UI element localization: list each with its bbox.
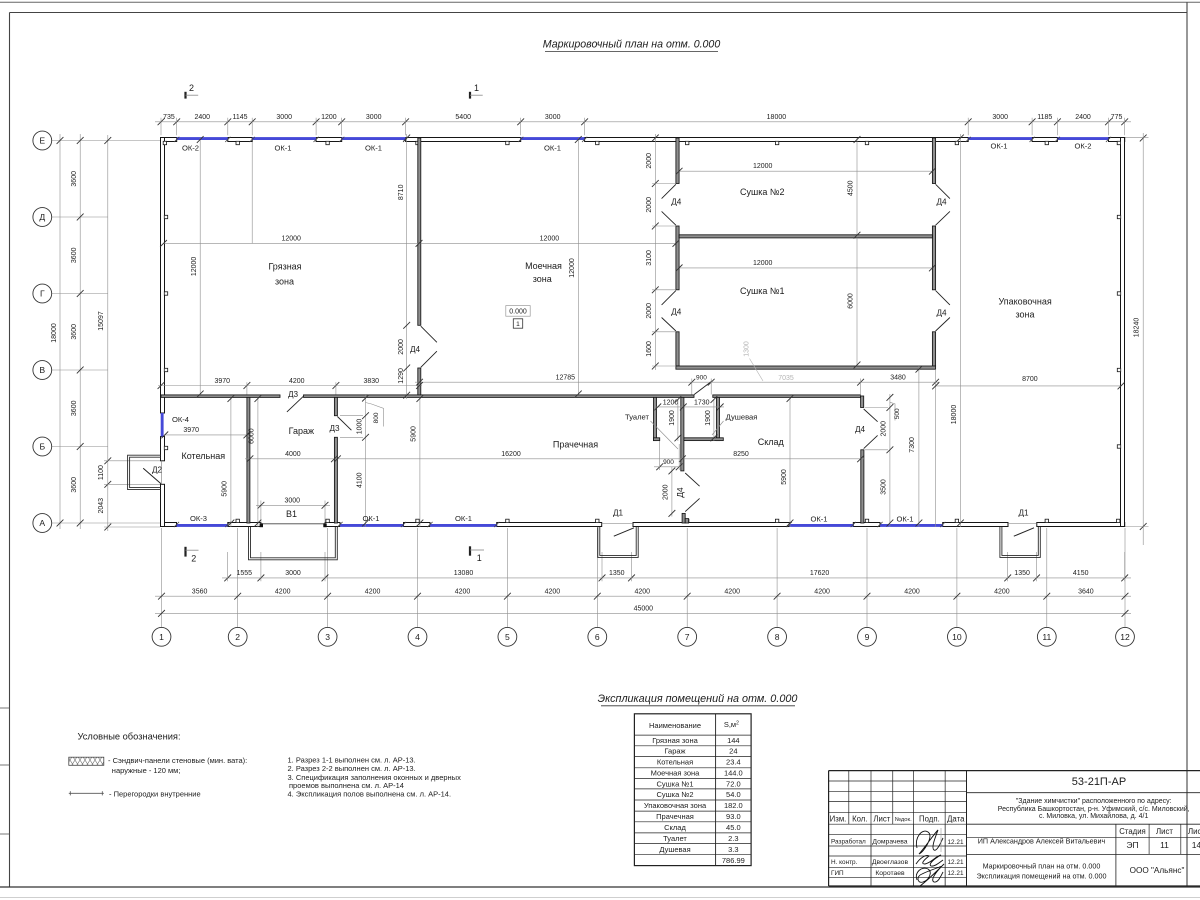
svg-text:Маркировочный план на отм. 0.0: Маркировочный план на отм. 0.000 <box>543 39 721 51</box>
svg-text:7300: 7300 <box>909 437 916 453</box>
svg-text:12000: 12000 <box>569 258 576 278</box>
svg-text:4500: 4500 <box>848 180 855 196</box>
svg-text:Склад: Склад <box>664 823 686 832</box>
svg-text:12000: 12000 <box>540 236 560 243</box>
svg-text:"Здание химчистки" расположенн: "Здание химчистки" расположенного по адр… <box>1016 798 1172 805</box>
svg-text:Прачечная: Прачечная <box>656 812 694 821</box>
svg-text:Гараж: Гараж <box>664 747 685 756</box>
svg-text:Д4: Д4 <box>671 198 682 207</box>
svg-text:3100: 3100 <box>646 250 653 266</box>
svg-text:4100: 4100 <box>357 472 364 488</box>
svg-text:2400: 2400 <box>195 114 211 121</box>
svg-text:1100: 1100 <box>98 465 105 480</box>
svg-text:2400: 2400 <box>1075 114 1091 121</box>
svg-text:Д: Д <box>39 212 45 222</box>
svg-text:0.000: 0.000 <box>509 308 527 315</box>
svg-text:500: 500 <box>894 408 901 419</box>
svg-text:11: 11 <box>1042 632 1051 642</box>
svg-text:18000: 18000 <box>51 323 58 343</box>
svg-text:1185: 1185 <box>1037 114 1052 121</box>
svg-text:2. Разрез 2-2 выполнен см. л.: 2. Разрез 2-2 выполнен см. л. АР-13. <box>288 764 416 773</box>
svg-text:зона: зона <box>275 277 294 287</box>
svg-text:Наименование: Наименование <box>649 721 701 730</box>
svg-text:Двоеглазов: Двоеглазов <box>872 859 909 866</box>
svg-text:4200: 4200 <box>994 588 1010 595</box>
svg-text:Д3: Д3 <box>329 424 340 433</box>
svg-text:6: 6 <box>595 632 600 642</box>
svg-text:1350: 1350 <box>609 570 625 577</box>
svg-text:2000: 2000 <box>398 339 405 355</box>
svg-text:ИП Александров Алексей Виталье: ИП Александров Алексей Витальевич <box>978 837 1106 846</box>
svg-text:Д2: Д2 <box>152 466 163 475</box>
svg-text:Моечная: Моечная <box>525 261 562 271</box>
svg-text:ГИП: ГИП <box>831 870 844 877</box>
svg-text:16200: 16200 <box>501 451 521 458</box>
svg-text:Кол.: Кол. <box>852 814 867 823</box>
svg-text:2043: 2043 <box>98 498 105 514</box>
svg-text:144: 144 <box>727 736 740 745</box>
svg-text:12.21: 12.21 <box>948 839 964 846</box>
svg-text:54.0: 54.0 <box>726 790 741 799</box>
svg-text:Душевая: Душевая <box>659 845 690 854</box>
svg-text:Туалет: Туалет <box>625 413 650 422</box>
svg-text:Экспликация помещений на отм.: Экспликация помещений на отм. 0.000 <box>976 871 1106 880</box>
svg-text:4200: 4200 <box>365 588 381 595</box>
svg-text:6000: 6000 <box>249 428 256 444</box>
svg-text:4200: 4200 <box>275 588 291 595</box>
svg-text:12000: 12000 <box>753 163 773 170</box>
svg-text:45.0: 45.0 <box>726 823 741 832</box>
svg-text:5900: 5900 <box>222 481 229 497</box>
svg-text:Туалет: Туалет <box>663 834 687 843</box>
svg-text:12785: 12785 <box>556 375 576 382</box>
svg-text:3600: 3600 <box>71 324 78 340</box>
svg-text:3480: 3480 <box>890 375 906 382</box>
svg-text:8710: 8710 <box>398 184 405 200</box>
svg-text:93.0: 93.0 <box>726 812 741 821</box>
svg-text:4200: 4200 <box>904 588 920 595</box>
svg-text:8250: 8250 <box>733 451 749 458</box>
svg-text:2: 2 <box>191 554 196 564</box>
svg-text:1: 1 <box>516 321 520 328</box>
svg-text:проемов выполнена см. л. АР-14: проемов выполнена см. л. АР-14 <box>289 781 404 790</box>
svg-text:900: 900 <box>663 459 674 466</box>
svg-text:182.0: 182.0 <box>724 801 743 810</box>
svg-text:3000: 3000 <box>545 114 561 121</box>
svg-text:1: 1 <box>477 553 482 563</box>
svg-text:Прачечная: Прачечная <box>553 439 598 449</box>
svg-text:Д4: Д4 <box>671 307 682 316</box>
svg-text:3600: 3600 <box>71 171 78 187</box>
svg-text:Сушка №1: Сушка №1 <box>656 779 693 788</box>
svg-text:Грязная: Грязная <box>268 262 301 272</box>
svg-text:3560: 3560 <box>192 588 208 595</box>
svg-text:72.0: 72.0 <box>726 779 741 788</box>
svg-text:4000: 4000 <box>285 451 301 458</box>
svg-text:1: 1 <box>159 632 164 642</box>
svg-text:3970: 3970 <box>183 427 199 434</box>
svg-text:3640: 3640 <box>1078 588 1094 595</box>
svg-text:12.21: 12.21 <box>948 870 964 877</box>
svg-text:8: 8 <box>775 632 780 642</box>
svg-text:1000: 1000 <box>357 419 364 435</box>
svg-text:45000: 45000 <box>634 606 654 613</box>
svg-text:4: 4 <box>415 632 420 642</box>
svg-text:3000: 3000 <box>366 114 382 121</box>
svg-text:ОК-1: ОК-1 <box>362 514 379 523</box>
svg-text:7: 7 <box>685 632 690 642</box>
svg-text:ОК-1: ОК-1 <box>810 514 827 523</box>
svg-text:6000: 6000 <box>848 293 855 309</box>
svg-text:5: 5 <box>505 632 510 642</box>
svg-text:12000: 12000 <box>281 236 301 243</box>
svg-text:зона: зона <box>533 274 552 284</box>
svg-text:3600: 3600 <box>71 247 78 263</box>
svg-text:Грязная зона: Грязная зона <box>652 736 698 745</box>
svg-text:с. Миловка, ул. Михайлова, д.: с. Миловка, ул. Михайлова, д. 4/1 <box>1039 812 1148 820</box>
svg-text:Д4: Д4 <box>410 345 421 354</box>
svg-text:1730: 1730 <box>694 399 710 406</box>
svg-text:Дата: Дата <box>947 814 965 823</box>
svg-text:23.4: 23.4 <box>726 758 741 767</box>
svg-text:Д4: Д4 <box>936 309 947 318</box>
svg-text:12.21: 12.21 <box>948 859 964 866</box>
svg-text:3830: 3830 <box>364 378 380 385</box>
svg-text:ОК-1: ОК-1 <box>990 141 1007 150</box>
svg-text:1350: 1350 <box>1014 570 1030 577</box>
svg-text:Республика Башкортостан, р-н.: Республика Башкортостан, р-н. Уфимский, … <box>998 805 1190 813</box>
svg-text:Стадия: Стадия <box>1119 827 1146 836</box>
svg-text:13080: 13080 <box>454 570 474 577</box>
svg-text:2000: 2000 <box>646 197 653 213</box>
svg-text:4200: 4200 <box>635 588 651 595</box>
svg-text:1290: 1290 <box>398 368 405 384</box>
svg-text:ОК-1: ОК-1 <box>455 514 472 523</box>
svg-text:12000: 12000 <box>753 260 773 267</box>
svg-text:Д1: Д1 <box>613 509 624 518</box>
svg-text:14: 14 <box>1192 840 1200 850</box>
svg-text:1555: 1555 <box>237 570 253 577</box>
svg-text:2000: 2000 <box>646 303 653 319</box>
svg-text:5400: 5400 <box>455 114 471 121</box>
svg-text:ООО "Альянс": ООО "Альянс" <box>1130 866 1185 875</box>
svg-text:Котельная: Котельная <box>657 758 693 767</box>
svg-text:Е: Е <box>39 136 45 146</box>
svg-text:775: 775 <box>1111 114 1123 121</box>
svg-text:18000: 18000 <box>951 405 958 425</box>
svg-text:Лист: Лист <box>873 814 890 823</box>
svg-text:Упаковочная: Упаковочная <box>998 297 1051 307</box>
svg-text:1900: 1900 <box>705 410 712 426</box>
svg-text:3: 3 <box>325 632 330 642</box>
svg-text:4. Экспликация полов выполнена: 4. Экспликация полов выполнена см. л. АР… <box>288 790 452 799</box>
svg-text:3000: 3000 <box>276 114 292 121</box>
svg-text:4200: 4200 <box>814 588 830 595</box>
svg-text:900: 900 <box>696 375 707 382</box>
svg-text:144.0: 144.0 <box>724 769 743 778</box>
svg-text:3600: 3600 <box>71 400 78 416</box>
svg-text:4150: 4150 <box>1073 570 1089 577</box>
svg-text:786.99: 786.99 <box>722 856 745 865</box>
svg-text:Б: Б <box>39 442 45 452</box>
svg-text:В: В <box>39 365 45 375</box>
svg-text:800: 800 <box>373 412 380 423</box>
svg-text:- Перегородки внутренние: - Перегородки внутренние <box>109 790 201 799</box>
svg-text:9: 9 <box>865 632 870 642</box>
svg-text:2000: 2000 <box>663 484 670 500</box>
svg-text:3500: 3500 <box>881 479 888 495</box>
svg-text:Д4: Д4 <box>936 198 947 207</box>
svg-text:3000: 3000 <box>992 114 1008 121</box>
svg-text:Д4: Д4 <box>855 425 866 434</box>
svg-text:Экспликация помещений на отм.: Экспликация помещений на отм. 0.000 <box>598 693 798 705</box>
svg-text:3970: 3970 <box>215 378 231 385</box>
svg-text:ОК-1: ОК-1 <box>544 143 561 152</box>
svg-text:735: 735 <box>163 114 175 121</box>
svg-text:Д4: Д4 <box>676 487 685 498</box>
svg-text:1300: 1300 <box>743 341 750 357</box>
svg-text:Условные обозначения:: Условные обозначения: <box>78 732 181 742</box>
svg-text:ОК-1: ОК-1 <box>896 514 913 523</box>
svg-text:наружные - 120 мм;: наружные - 120 мм; <box>112 766 181 775</box>
svg-text:4200: 4200 <box>455 588 471 595</box>
svg-text:3000: 3000 <box>285 570 301 577</box>
svg-text:Гараж: Гараж <box>289 426 314 436</box>
svg-text:2: 2 <box>189 83 194 93</box>
svg-text:24: 24 <box>729 747 737 756</box>
svg-text:ЭП: ЭП <box>1126 840 1138 850</box>
svg-text:Лист: Лист <box>1188 827 1200 836</box>
svg-text:Домрачева: Домрачева <box>872 838 907 845</box>
svg-text:Моечная зона: Моечная зона <box>651 769 700 778</box>
svg-text:4200: 4200 <box>545 588 561 595</box>
svg-text:1. Разрез 1-1 выполнен см. л.: 1. Разрез 1-1 выполнен см. л. АР-13. <box>288 755 416 764</box>
svg-text:5900: 5900 <box>411 426 418 442</box>
svg-text:Разработал: Разработал <box>831 837 866 845</box>
svg-text:2000: 2000 <box>881 421 888 437</box>
svg-text:Г: Г <box>40 289 45 299</box>
svg-text:18240: 18240 <box>1134 318 1141 338</box>
svg-text:11: 11 <box>1160 840 1169 850</box>
svg-text:10: 10 <box>952 632 962 642</box>
svg-text:Склад: Склад <box>758 437 785 447</box>
svg-text:2: 2 <box>235 632 240 642</box>
svg-text:18000: 18000 <box>767 114 787 121</box>
svg-text:Сушка №1: Сушка №1 <box>740 286 785 296</box>
svg-text:Н. контр.: Н. контр. <box>831 859 858 866</box>
svg-text:7035: 7035 <box>778 375 794 382</box>
svg-text:15097: 15097 <box>98 311 105 331</box>
svg-text:ОК-3: ОК-3 <box>190 514 207 523</box>
svg-text:Упаковочная зона: Упаковочная зона <box>644 801 707 810</box>
svg-text:Маркировочный план на отм. 0.0: Маркировочный план на отм. 0.000 <box>983 861 1101 870</box>
svg-text:2.3: 2.3 <box>728 834 738 843</box>
svg-text:1: 1 <box>474 83 479 93</box>
svg-text:5900: 5900 <box>781 469 788 485</box>
svg-text:ОК-1: ОК-1 <box>274 143 291 152</box>
svg-text:8700: 8700 <box>1022 376 1038 383</box>
svg-text:4200: 4200 <box>724 588 740 595</box>
svg-text:В1: В1 <box>286 509 297 519</box>
svg-text:Подп.: Подп. <box>919 814 940 823</box>
svg-text:ОК-2: ОК-2 <box>1074 141 1091 150</box>
svg-text:Д1: Д1 <box>1018 509 1029 518</box>
svg-text:1200: 1200 <box>663 399 679 406</box>
svg-text:17620: 17620 <box>810 570 830 577</box>
svg-text:№док.: №док. <box>895 817 912 823</box>
svg-text:3.3: 3.3 <box>728 845 738 854</box>
svg-text:- Сэндвич-панели стеновые (мин: - Сэндвич-панели стеновые (мин. вата): <box>108 756 247 765</box>
svg-text:Котельная: Котельная <box>182 451 226 461</box>
svg-text:3000: 3000 <box>285 498 301 505</box>
svg-text:зона: зона <box>1015 310 1034 320</box>
svg-text:53-21П-АР: 53-21П-АР <box>1072 776 1126 788</box>
svg-text:Коротаев: Коротаев <box>875 870 905 877</box>
svg-text:А: А <box>39 518 45 528</box>
svg-text:1200: 1200 <box>321 114 337 121</box>
svg-text:Лист: Лист <box>1156 827 1173 836</box>
svg-text:ОК-2: ОК-2 <box>182 143 199 152</box>
svg-text:Изм.: Изм. <box>830 814 847 823</box>
svg-text:1145: 1145 <box>232 114 247 121</box>
svg-text:Сушка №2: Сушка №2 <box>656 790 693 799</box>
svg-text:Д3: Д3 <box>288 390 299 399</box>
svg-text:12000: 12000 <box>191 257 198 277</box>
svg-text:2000: 2000 <box>646 153 653 169</box>
svg-text:12: 12 <box>1120 632 1130 642</box>
svg-text:Душевая: Душевая <box>726 413 758 422</box>
svg-text:Сушка №2: Сушка №2 <box>740 187 785 197</box>
svg-text:1900: 1900 <box>669 410 676 426</box>
svg-text:3600: 3600 <box>71 477 78 493</box>
svg-text:4200: 4200 <box>289 378 305 385</box>
svg-text:ОК-1: ОК-1 <box>365 143 382 152</box>
svg-text:ОК-4: ОК-4 <box>172 415 189 424</box>
svg-text:1600: 1600 <box>646 341 653 357</box>
